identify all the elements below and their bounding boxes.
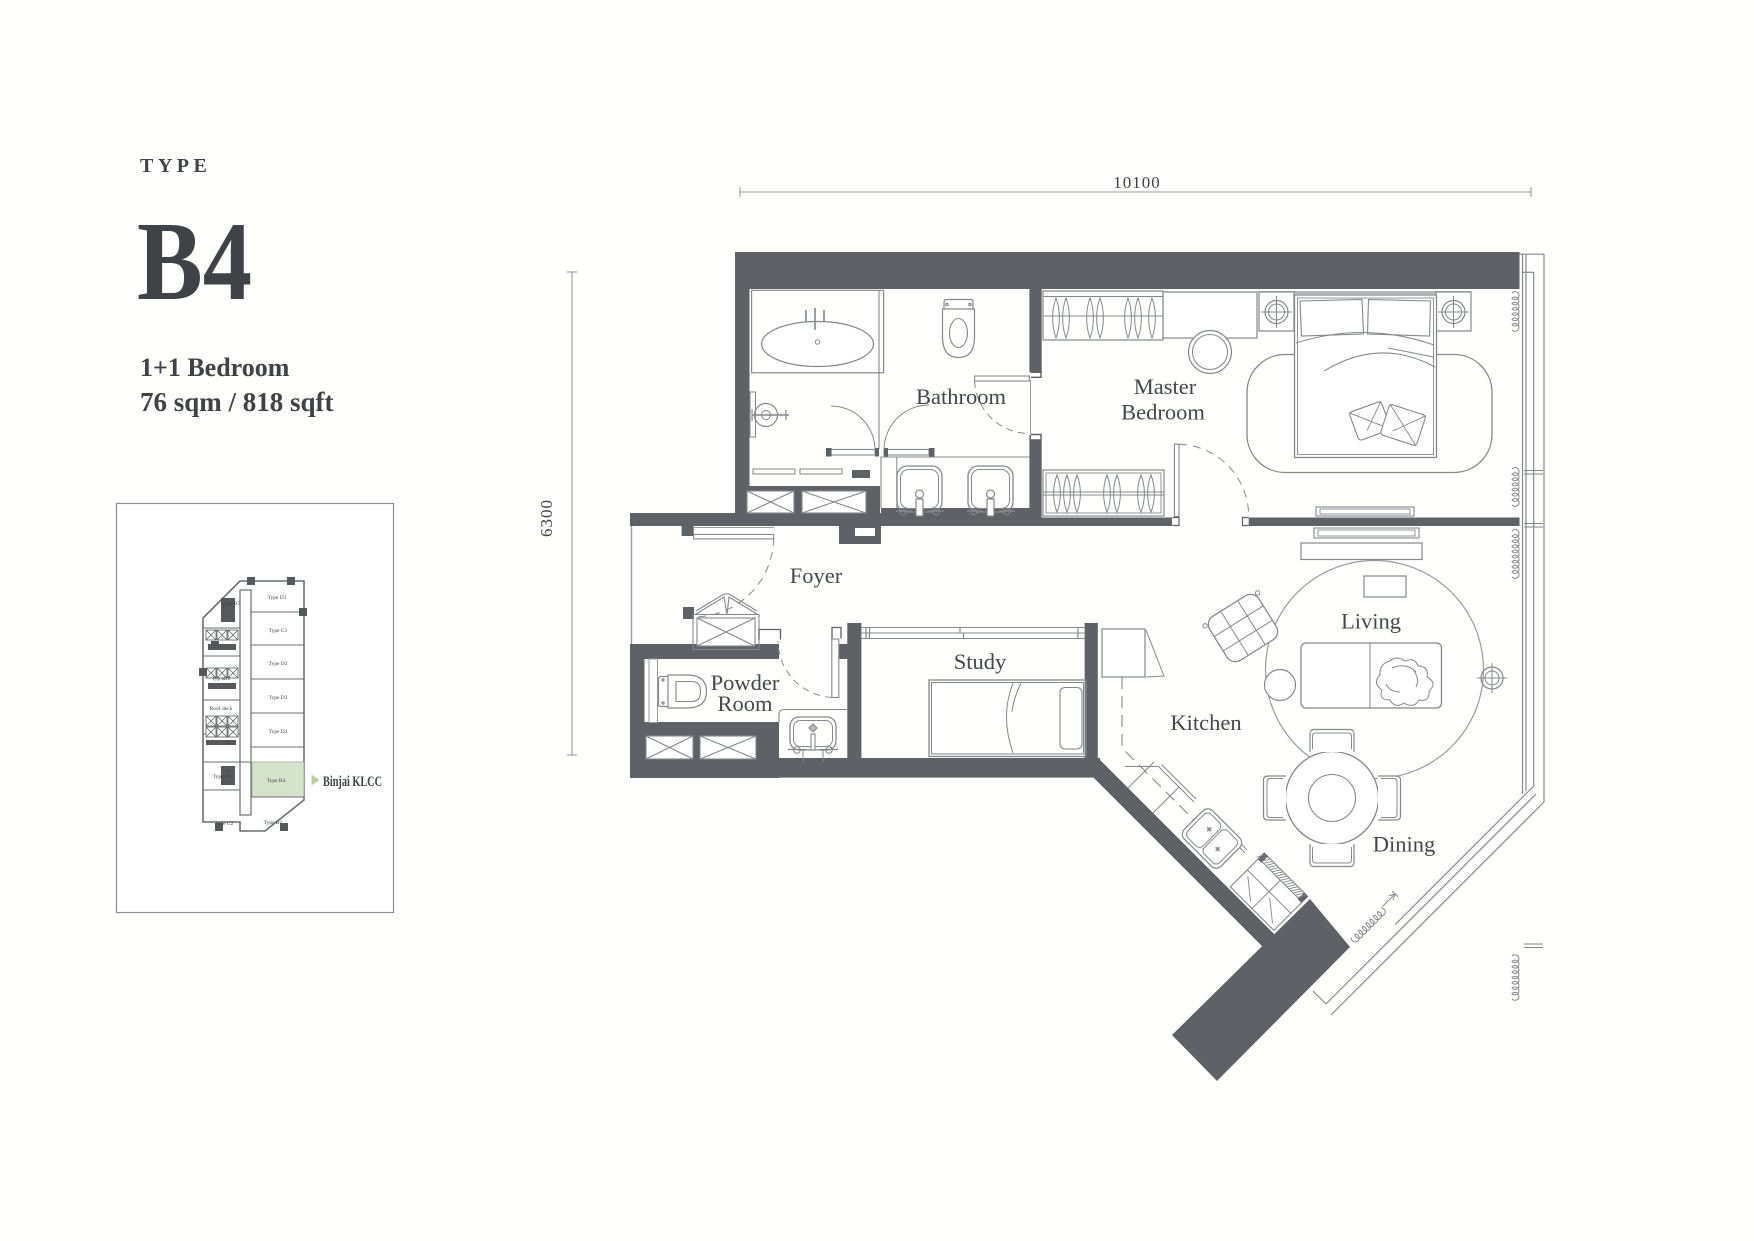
- svg-text:Type B4: Type B4: [267, 778, 286, 784]
- svg-text:Kitchen: Kitchen: [1170, 710, 1241, 735]
- svg-text:Binjai KLCC: Binjai KLCC: [323, 774, 382, 790]
- svg-text:Type D2: Type D2: [268, 729, 287, 735]
- svg-text:Room: Room: [717, 691, 773, 716]
- svg-text:1+1 Bedroom: 1+1 Bedroom: [140, 353, 290, 382]
- svg-text:Bedroom: Bedroom: [1121, 400, 1205, 425]
- svg-text:TYPE: TYPE: [140, 155, 211, 177]
- svg-text:Type B3: Type B3: [222, 601, 241, 607]
- svg-text:Type D2: Type D2: [268, 661, 287, 667]
- svg-text:Study: Study: [954, 649, 1007, 674]
- svg-text:Dining: Dining: [1373, 832, 1436, 857]
- svg-text:Type D1: Type D1: [267, 595, 286, 601]
- svg-text:Typ aB2: Typ aB2: [212, 676, 231, 682]
- svg-text:Type B1: Type B1: [264, 820, 283, 826]
- svg-text:Foyer: Foyer: [790, 563, 843, 588]
- svg-text:Type D2: Type D2: [268, 695, 287, 701]
- svg-text:Bathroom: Bathroom: [916, 384, 1006, 409]
- svg-text:Living: Living: [1341, 609, 1401, 634]
- svg-text:B4: B4: [137, 199, 252, 323]
- svg-text:10100: 10100: [1113, 173, 1161, 192]
- svg-text:Type C2: Type C2: [215, 821, 234, 827]
- svg-text:6300: 6300: [537, 499, 556, 537]
- svg-text:76 sqm / 818 sqft: 76 sqm / 818 sqft: [140, 387, 334, 417]
- svg-text:Roof deck: Roof deck: [210, 705, 233, 712]
- svg-text:Type B5: Type B5: [213, 774, 232, 780]
- svg-text:Master: Master: [1134, 374, 1197, 399]
- svg-text:Type C1: Type C1: [269, 628, 288, 634]
